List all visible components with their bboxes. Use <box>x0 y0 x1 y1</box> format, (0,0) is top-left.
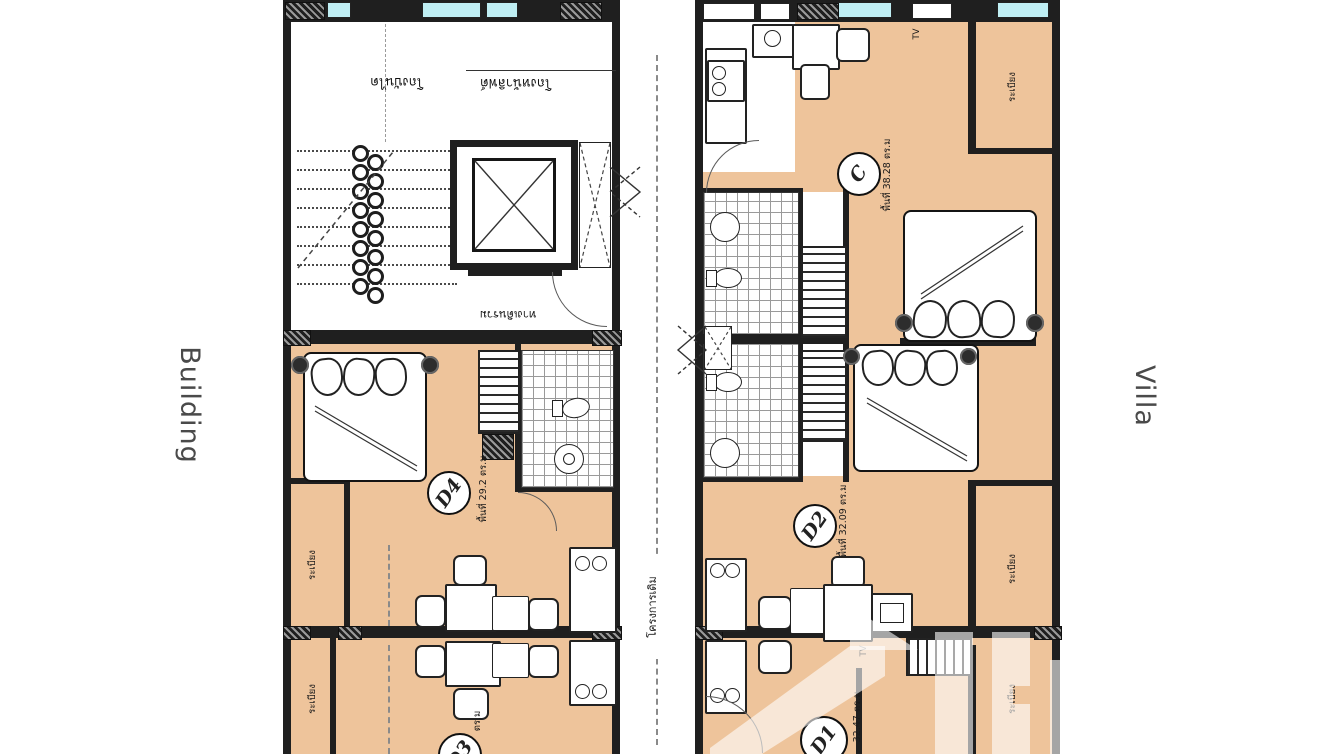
opening-line <box>388 545 390 626</box>
window <box>422 2 481 18</box>
chair <box>528 645 559 678</box>
column-block <box>560 2 602 20</box>
floorplan-sheet: โถงบันได โถงหน้าลิฟต์ ทางเดินรวม D4 พื้น… <box>0 0 1342 754</box>
balcony-label: ระเบียง <box>1006 663 1020 735</box>
table <box>445 584 497 632</box>
window <box>997 2 1049 18</box>
stair-flight <box>801 350 847 442</box>
wall <box>968 148 1060 154</box>
chair <box>453 555 487 586</box>
unit-stair <box>478 350 520 434</box>
building-side-label: Building <box>165 325 205 485</box>
stair-hall-label: โถงบันได <box>337 72 457 93</box>
column-block <box>283 626 311 640</box>
wall <box>968 480 1060 486</box>
chair <box>415 645 446 678</box>
sink <box>710 563 725 578</box>
stair-flight <box>906 638 972 676</box>
door-symbol <box>676 324 708 376</box>
unit-label-d4: D4 <box>427 471 471 515</box>
divider-label: โครงการเดิม <box>646 555 660 659</box>
wall <box>330 638 336 754</box>
wall <box>1052 0 1060 754</box>
tv-label: TV <box>910 22 924 46</box>
duct-shaft <box>579 142 611 268</box>
bed <box>853 344 979 472</box>
balcony-label: ระเบียง <box>306 671 320 727</box>
column-block <box>338 626 362 640</box>
column-block <box>1034 626 1062 640</box>
shower-drain <box>710 438 740 468</box>
unit-area-d4: พื้นที่ 29.2 ตร.ม <box>477 434 491 544</box>
balcony-label: ระเบียง <box>1006 51 1020 123</box>
shower-drain <box>710 212 740 242</box>
stair-run-line <box>298 150 398 270</box>
toilet <box>714 372 742 392</box>
unit-area-d3: ตร.ม <box>471 691 485 751</box>
stair-flight <box>801 246 847 338</box>
table <box>790 588 826 634</box>
villa-side-label: Villa <box>1120 316 1160 476</box>
toilet <box>714 268 742 288</box>
burner <box>712 66 726 80</box>
balcony-label: ระเบียง <box>306 537 320 593</box>
column-block <box>285 2 325 20</box>
label-rule <box>466 70 616 71</box>
wall <box>968 22 976 154</box>
toilet-tank <box>706 270 717 287</box>
vent-block <box>703 3 755 20</box>
unit-id: D2 <box>797 508 832 545</box>
wall <box>695 0 703 754</box>
toilet-tank <box>706 374 717 391</box>
unit-area-c: พื้นที่ 38.28 ตร.ม <box>881 119 895 231</box>
stove <box>707 60 745 102</box>
window <box>838 2 892 18</box>
column-block <box>283 330 311 346</box>
window <box>486 2 518 18</box>
unit-id: D1 <box>806 722 841 754</box>
shower-drain-center <box>563 453 575 465</box>
bed <box>303 352 427 482</box>
corridor-label: ทางเดินรวม <box>448 306 568 324</box>
wall <box>283 330 620 344</box>
chair <box>758 596 792 630</box>
duct-shaft <box>704 326 732 370</box>
bed <box>903 210 1037 342</box>
tv-label: TV <box>857 639 871 663</box>
wall <box>344 478 350 626</box>
table <box>823 584 873 642</box>
sink <box>725 563 740 578</box>
sink <box>592 556 607 571</box>
wall <box>283 0 291 754</box>
balcony-label: ระเบียง <box>1006 533 1020 605</box>
chair <box>528 598 559 631</box>
unit-label-d2: D2 <box>793 504 837 548</box>
sink <box>764 30 781 47</box>
elevator-cab <box>472 158 556 252</box>
unit-id: D4 <box>431 475 466 512</box>
table <box>492 596 529 631</box>
unit-area-d1: 32.47 ตร.ม <box>851 671 865 754</box>
unit-area-d2: พื้นที่ 32.09 ตร.ม <box>837 465 851 577</box>
window <box>327 2 351 18</box>
toilet-tank <box>552 400 563 417</box>
vent-block <box>912 3 952 19</box>
vent-block <box>760 3 790 20</box>
burner <box>712 82 726 96</box>
chair <box>758 640 792 674</box>
table <box>492 643 529 678</box>
tv-stand <box>871 593 913 633</box>
opening-line <box>388 645 390 754</box>
lift-hall-label: โถงหน้าลิฟต์ <box>456 73 576 94</box>
table <box>836 28 870 62</box>
column-block <box>592 330 622 346</box>
unit-id: C <box>846 161 873 186</box>
wall <box>968 480 976 632</box>
chair <box>415 595 446 628</box>
column-block <box>797 3 839 20</box>
unit-label-c: C <box>837 152 881 196</box>
door-symbol <box>608 165 642 219</box>
sink <box>575 684 590 699</box>
sink <box>575 556 590 571</box>
sink <box>592 684 607 699</box>
table <box>800 64 830 100</box>
